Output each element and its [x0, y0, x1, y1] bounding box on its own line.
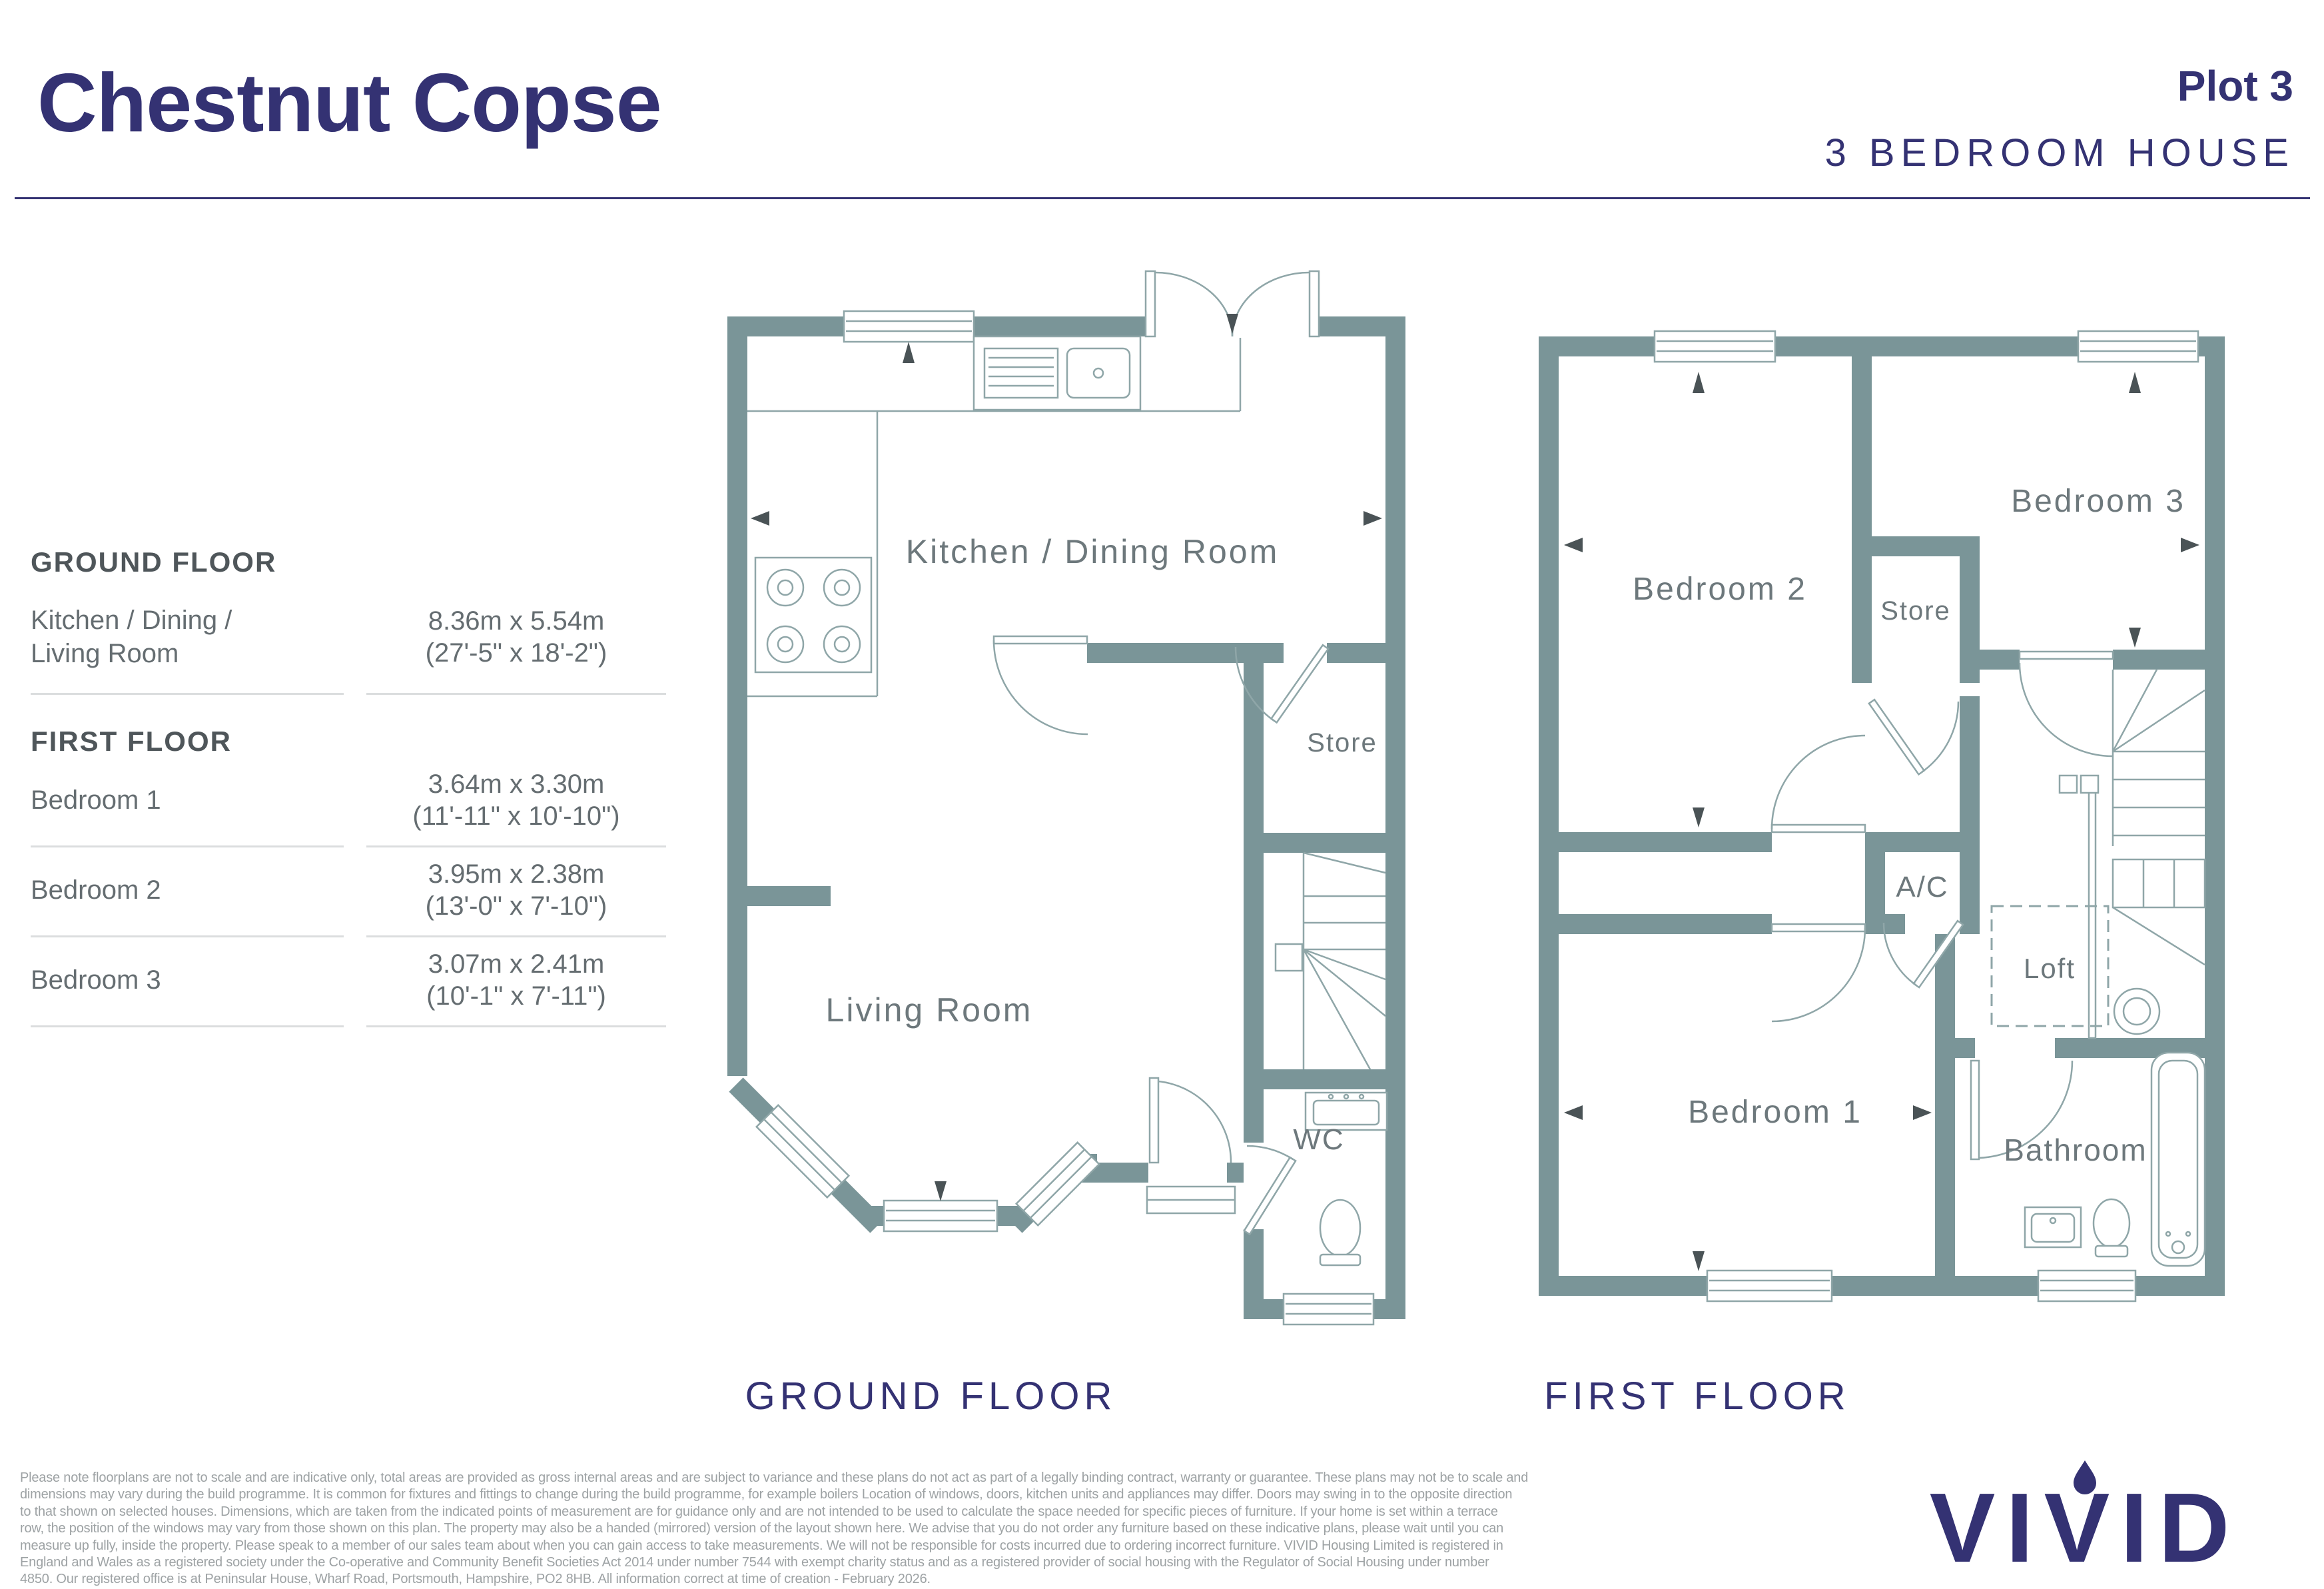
window-symbol-bathroom [2038, 1271, 2135, 1301]
row-label: Bedroom 2 [31, 847, 344, 937]
door-symbol-bedroom3 [2020, 652, 2113, 756]
door-symbol-living [994, 636, 1088, 734]
room-label-store-ff: Store [1880, 596, 1951, 626]
first-floor-plan: Bedroom 2 Bedroom 3 Store A/C Loft Bedro… [1532, 320, 2238, 1313]
room-label-bedroom2: Bedroom 2 [1633, 572, 1807, 607]
window-symbol-bay-right [1016, 1143, 1099, 1225]
window-symbol-bedroom2 [1655, 331, 1775, 362]
room-label-bathroom: Bathroom [2004, 1133, 2147, 1167]
wc-fixtures [1306, 1093, 1387, 1265]
section-heading-first-floor: FIRST FLOOR [31, 726, 666, 758]
row-label: Bedroom 1 [31, 758, 344, 847]
row-dimensions: 3.64m x 3.30m (11'-11" x 10'-10") [366, 758, 666, 847]
room-label-store-gf: Store [1307, 728, 1377, 758]
room-label-wc: WC [1293, 1123, 1344, 1156]
window-symbol-bay-left [757, 1105, 849, 1198]
toilet-symbol-ff [2094, 1199, 2130, 1257]
staircase-symbol [1276, 853, 1385, 1069]
door-symbol-bedroom2 [1772, 736, 1865, 832]
room-label-loft: Loft [2024, 953, 2076, 984]
header-divider [15, 197, 2310, 199]
room-label-ac: A/C [1896, 871, 1948, 903]
plot-number: Plot 3 [2177, 61, 2293, 111]
dimensions-table: GROUND FLOOR Kitchen / Dining / Living R… [31, 546, 666, 1027]
table-row-bedroom2: Bedroom 2 3.95m x 2.38m (13'-0" x 7'-10"… [31, 847, 666, 937]
window-symbol-wc [1284, 1294, 1373, 1324]
ground-floor-plan: Kitchen / Dining Room Living Room Store … [714, 270, 1420, 1342]
row-dimensions: 3.95m x 2.38m (13'-0" x 7'-10") [366, 847, 666, 937]
window-symbol-kitchen [844, 311, 974, 342]
hob-symbol [755, 558, 871, 672]
row-dimensions: 8.36m x 5.54m (27'-5" x 18'-2") [366, 580, 666, 695]
row-dimensions: 3.07m x 2.41m (10'-1" x 7'-11") [366, 937, 666, 1027]
logo-text: VIVID [1930, 1473, 2241, 1567]
bath-symbol [2151, 1053, 2205, 1266]
door-symbol-wc [1244, 1146, 1296, 1235]
basin-symbol-ff [2025, 1207, 2081, 1247]
room-label-bedroom1: Bedroom 1 [1688, 1095, 1862, 1130]
room-label-living: Living Room [826, 991, 1033, 1029]
sink-symbol [974, 336, 1140, 410]
room-label-bedroom3: Bedroom 3 [2011, 484, 2185, 519]
vivid-logo: VIVID [1865, 1460, 2305, 1567]
floorplan-sheet: Chestnut Copse Plot 3 3 BEDROOM HOUSE GR… [0, 0, 2324, 1589]
disclaimer-text: Please note floorplans are not to scale … [20, 1470, 1528, 1588]
measure-arrows [751, 314, 1382, 1201]
window-symbol-bay-centre [884, 1201, 997, 1231]
door-symbol-bedroom1 [1772, 924, 1865, 1021]
door-symbol-store-ff [1869, 700, 1958, 774]
ground-floor-caption: GROUND FLOOR [716, 1374, 1146, 1418]
window-symbol-bedroom1 [1707, 1271, 1832, 1301]
room-label-kitchen-dining: Kitchen / Dining Room [906, 533, 1279, 570]
section-heading-ground-floor: GROUND FLOOR [31, 546, 666, 578]
development-title: Chestnut Copse [37, 56, 661, 151]
door-symbol-front [1147, 1078, 1235, 1213]
row-label: Kitchen / Dining / Living Room [31, 580, 344, 695]
ground-floor-doors [994, 636, 1328, 1235]
table-row-bedroom3: Bedroom 3 3.07m x 2.41m (10'-1" x 7'-11"… [31, 937, 666, 1027]
row-label: Bedroom 3 [31, 937, 344, 1027]
house-type-subtitle: 3 BEDROOM HOUSE [1825, 131, 2295, 175]
staircase-symbol-ff [2060, 670, 2205, 1038]
cylinder-symbol [2114, 989, 2159, 1034]
table-row-kitchen: Kitchen / Dining / Living Room 8.36m x 5… [31, 578, 666, 695]
table-row-bedroom1: Bedroom 1 3.64m x 3.30m (11'-11" x 10'-1… [31, 758, 666, 847]
window-symbol-bedroom3 [2078, 331, 2198, 362]
first-floor-caption: FIRST FLOOR [1524, 1374, 1870, 1418]
toilet-symbol [1320, 1200, 1360, 1265]
